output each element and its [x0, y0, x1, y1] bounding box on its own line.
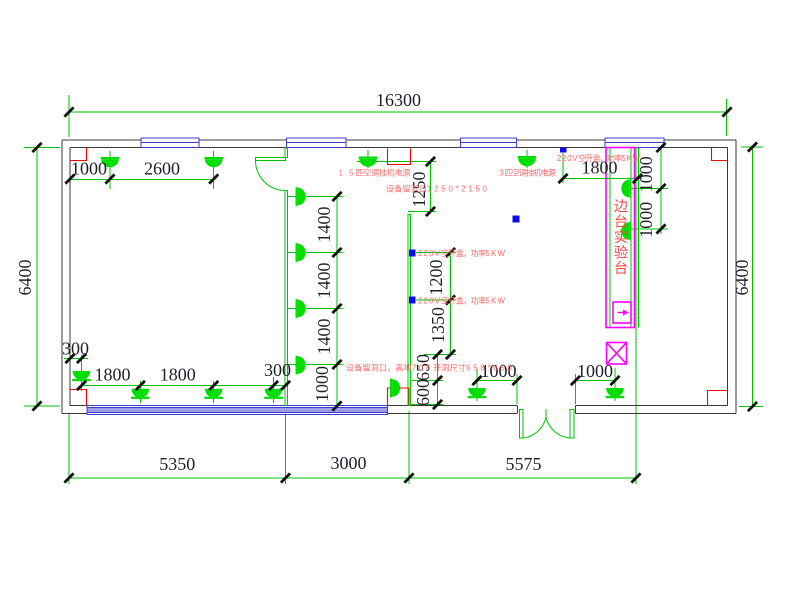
svg-text:2 2 0 V 空开盒，功率5 K W: 2 2 0 V 空开盒，功率5 K W: [418, 296, 505, 306]
svg-text:2600: 2600: [144, 159, 180, 179]
svg-text:边: 边: [614, 198, 628, 214]
svg-text:设备留洞口1 2 5 0 * 2 1 5 0: 设备留洞口1 2 5 0 * 2 1 5 0: [386, 184, 488, 194]
svg-text:2 2 0 V 空开盒，功率5 K W: 2 2 0 V 空开盒，功率5 K W: [418, 248, 505, 258]
svg-text:600: 600: [413, 379, 433, 406]
svg-text:6400: 6400: [732, 260, 752, 296]
svg-text:300: 300: [62, 339, 89, 359]
svg-text:5350: 5350: [159, 454, 195, 474]
svg-text:1350: 1350: [428, 307, 448, 343]
svg-text:16300: 16300: [376, 90, 421, 110]
svg-text:1000: 1000: [312, 366, 332, 402]
svg-text:设备留洞口，离地7 0 0 开洞尺寸6 5 0 * 6 5: 设备留洞口，离地7 0 0 开洞尺寸6 5 0 * 6 5 0: [346, 363, 513, 373]
svg-text:1200: 1200: [426, 260, 446, 296]
svg-text:1800: 1800: [160, 365, 196, 385]
svg-text:1400: 1400: [314, 319, 334, 355]
svg-text:台: 台: [614, 260, 628, 276]
svg-text:3 匹空调挂机电源: 3 匹空调挂机电源: [500, 168, 556, 178]
svg-text:台: 台: [614, 214, 628, 230]
svg-text:300: 300: [264, 360, 291, 380]
svg-text:1000: 1000: [636, 202, 656, 238]
svg-text:1800: 1800: [95, 365, 131, 385]
svg-text:1 . 5 匹空调挂机电源: 1 . 5 匹空调挂机电源: [339, 168, 411, 178]
svg-text:5575: 5575: [506, 454, 542, 474]
svg-text:验: 验: [614, 245, 628, 261]
svg-text:2 2 0 V 空开盒，功率5 K W: 2 2 0 V 空开盒，功率5 K W: [557, 153, 640, 163]
svg-text:6400: 6400: [15, 260, 35, 296]
svg-text:3000: 3000: [331, 453, 367, 473]
svg-text:1000: 1000: [71, 159, 107, 179]
svg-text:1400: 1400: [314, 263, 334, 299]
svg-text:1400: 1400: [314, 207, 334, 243]
svg-text:实: 实: [614, 229, 628, 245]
svg-text:1000: 1000: [577, 361, 613, 381]
